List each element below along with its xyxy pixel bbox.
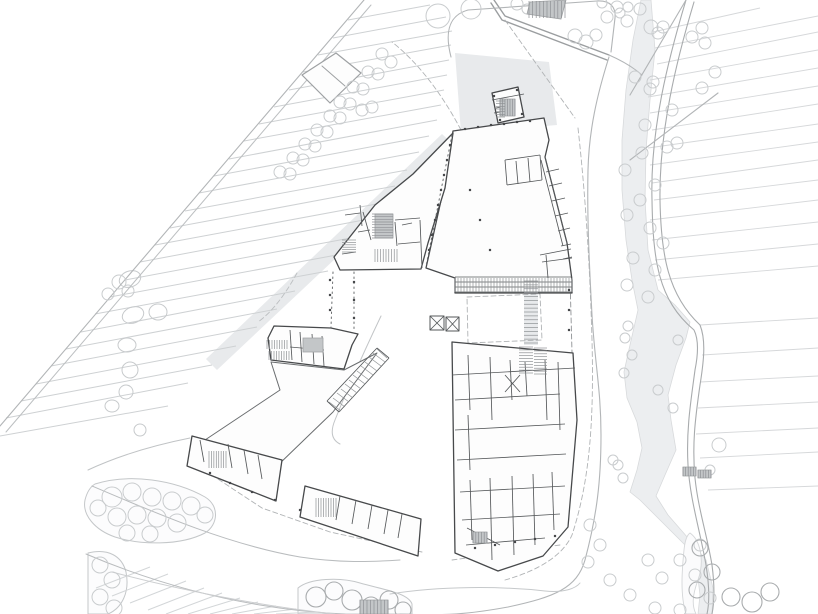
river xyxy=(622,0,713,614)
site-plan-page xyxy=(0,0,818,614)
site-plan-canvas xyxy=(0,0,818,614)
